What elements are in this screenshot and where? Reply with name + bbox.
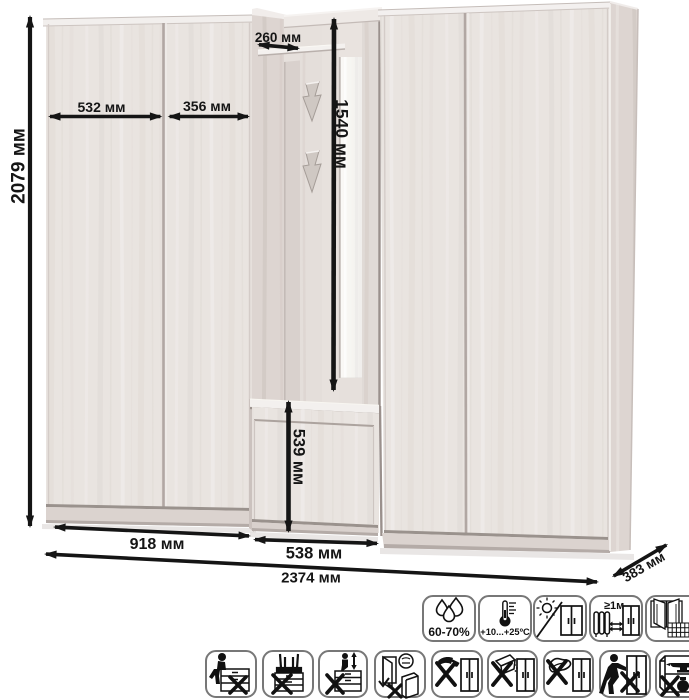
svg-text:2374 мм: 2374 мм <box>281 570 341 587</box>
svg-text:2079 мм: 2079 мм <box>9 128 30 204</box>
svg-text:260 мм: 260 мм <box>255 30 301 45</box>
svg-text:918 мм: 918 мм <box>130 536 185 553</box>
svg-text:60-70%: 60-70% <box>428 625 470 639</box>
svg-text:1540 мм: 1540 мм <box>332 99 352 169</box>
svg-text:532 мм: 532 мм <box>78 99 126 115</box>
svg-text:+10...+25ºC: +10...+25ºC <box>480 627 530 637</box>
svg-text:≥1м: ≥1м <box>604 600 624 612</box>
svg-text:538 мм: 538 мм <box>286 545 343 563</box>
svg-text:356 мм: 356 мм <box>183 98 231 114</box>
svg-text:539 мм: 539 мм <box>290 429 308 486</box>
